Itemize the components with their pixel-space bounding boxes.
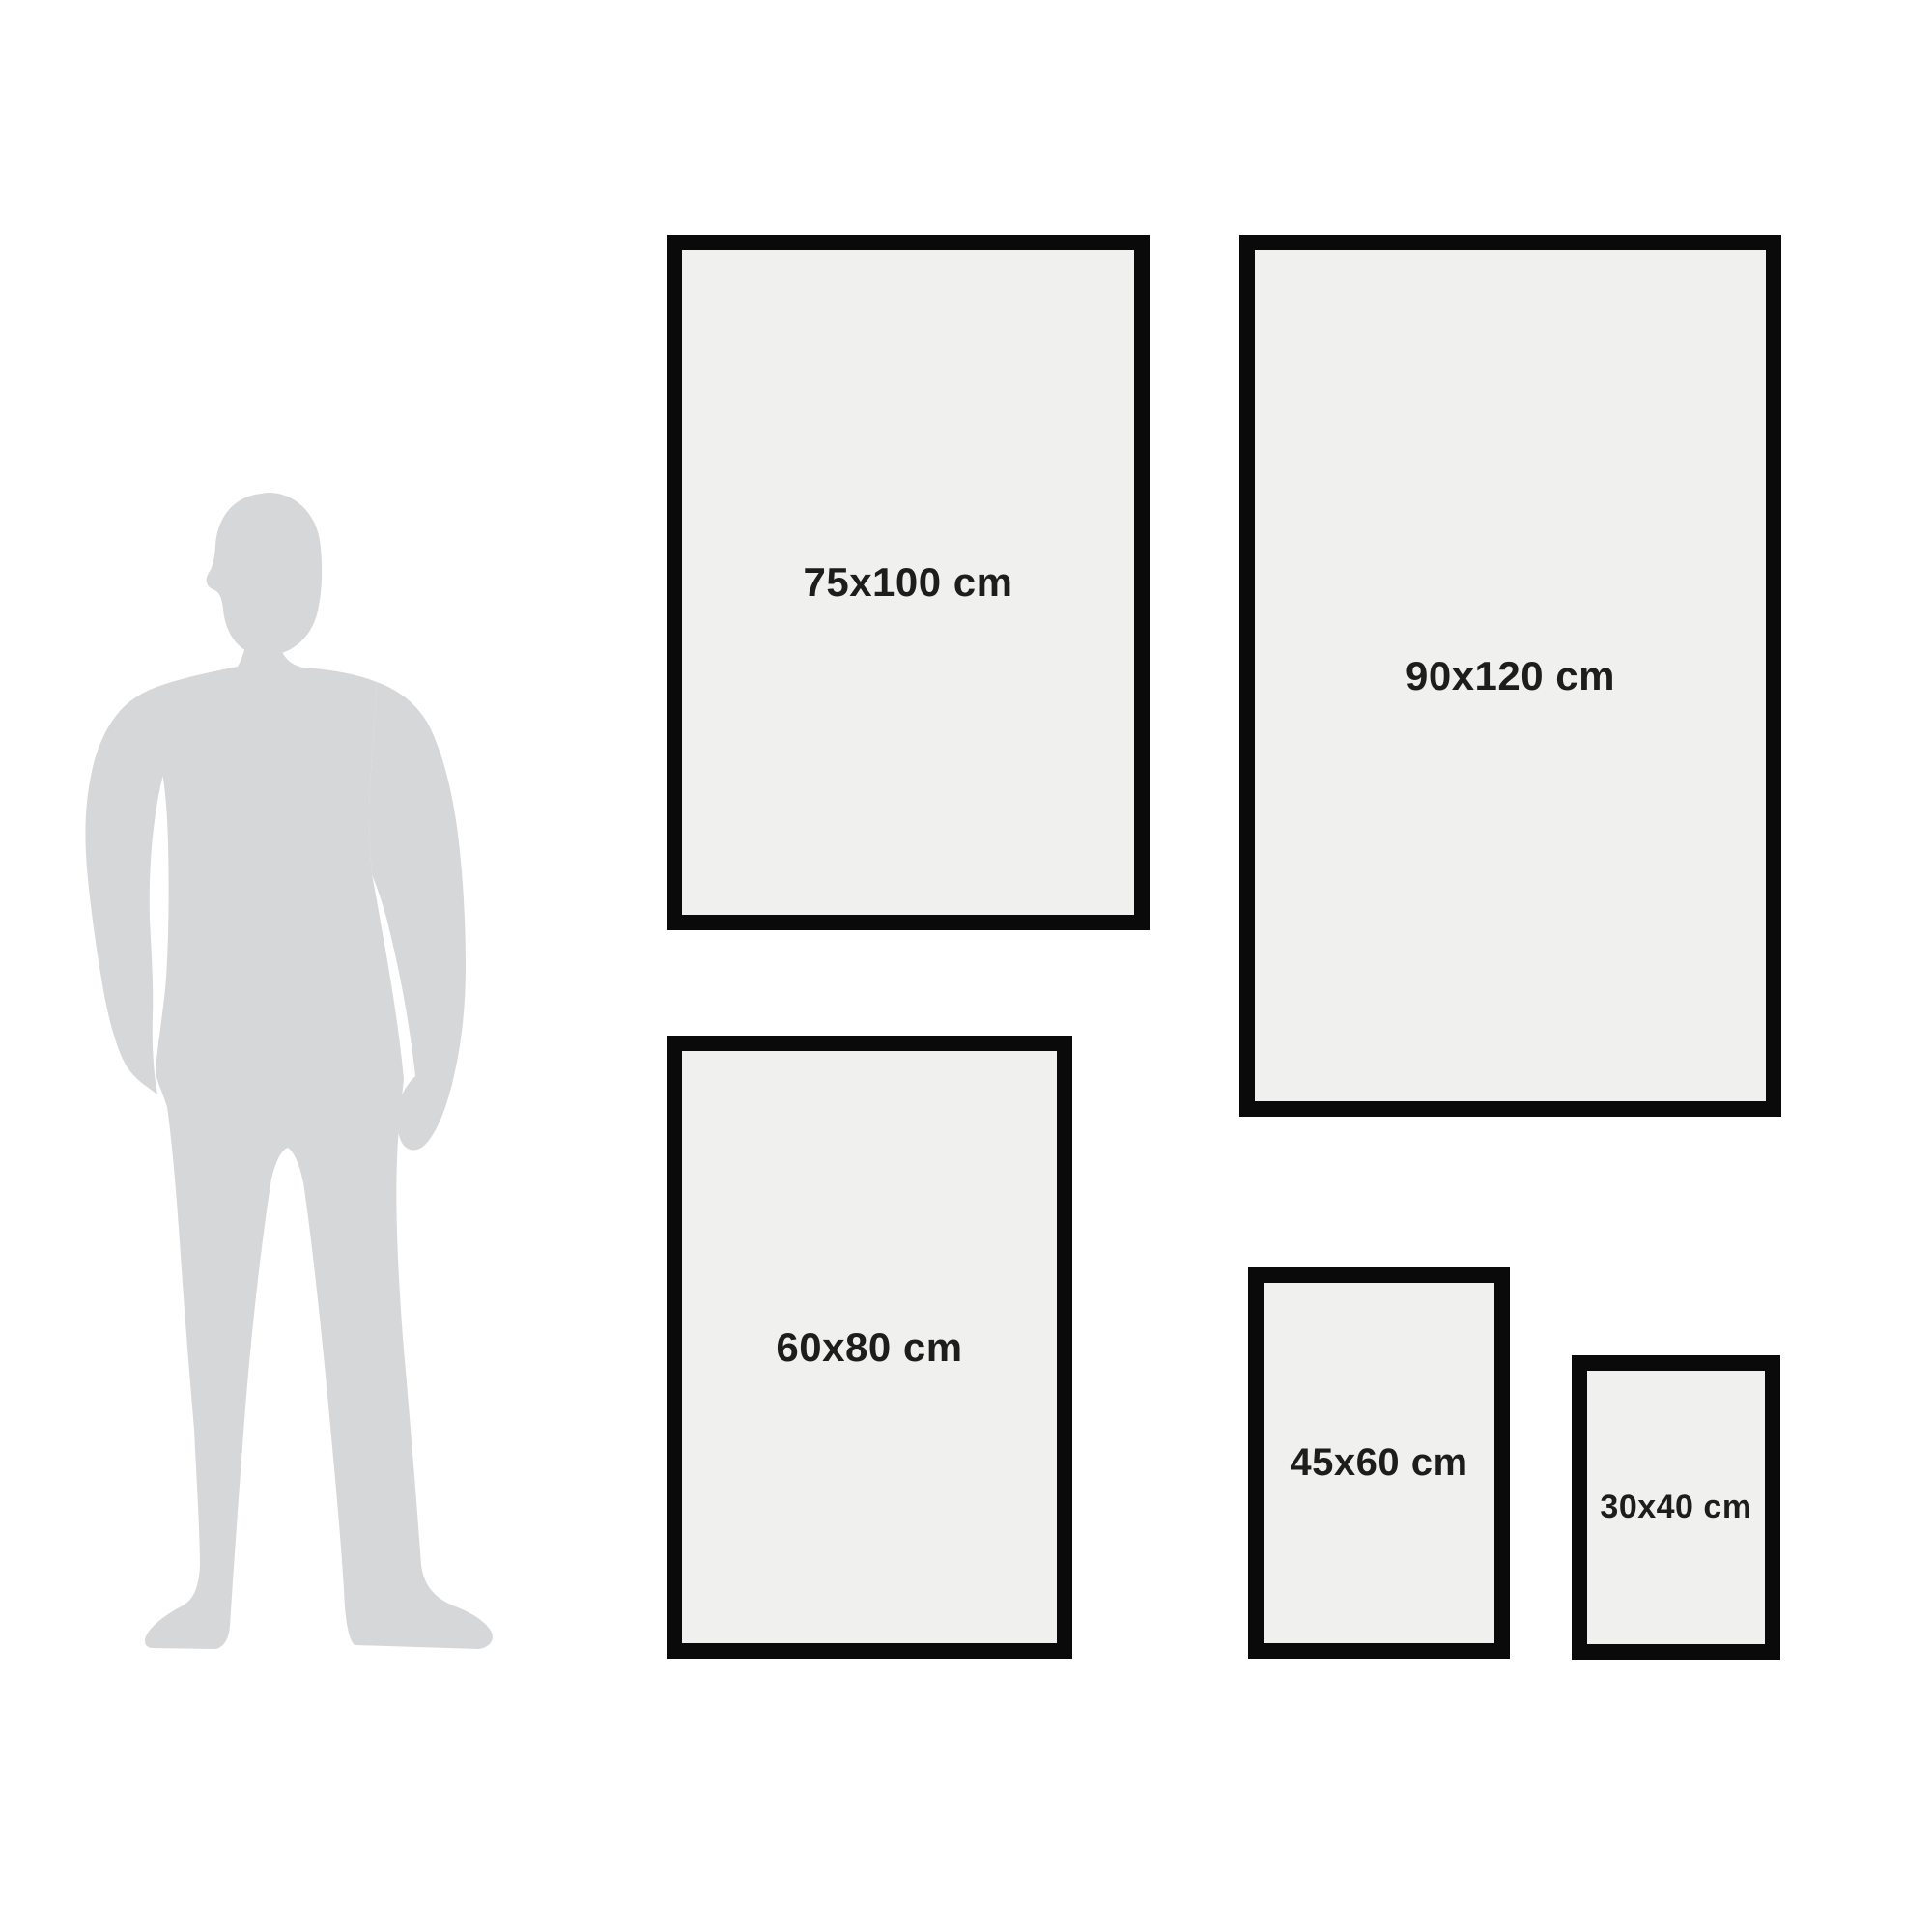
size-label-30x40: 30x40 cm — [1600, 1489, 1751, 1526]
size-frame-30x40: 30x40 cm — [1572, 1355, 1780, 1660]
size-label-75x100: 75x100 cm — [803, 559, 1012, 606]
size-label-45x60: 45x60 cm — [1290, 1441, 1467, 1485]
size-comparison-diagram: 75x100 cm 90x120 cm 60x80 cm 45x60 cm 30… — [0, 0, 1932, 1932]
size-frame-90x120: 90x120 cm — [1239, 235, 1781, 1117]
size-frame-60x80: 60x80 cm — [667, 1036, 1072, 1659]
size-label-90x120: 90x120 cm — [1406, 653, 1615, 699]
man-silhouette-icon — [77, 488, 507, 1657]
size-label-60x80: 60x80 cm — [776, 1324, 962, 1371]
size-frame-45x60: 45x60 cm — [1248, 1267, 1510, 1659]
size-frame-75x100: 75x100 cm — [667, 235, 1150, 930]
